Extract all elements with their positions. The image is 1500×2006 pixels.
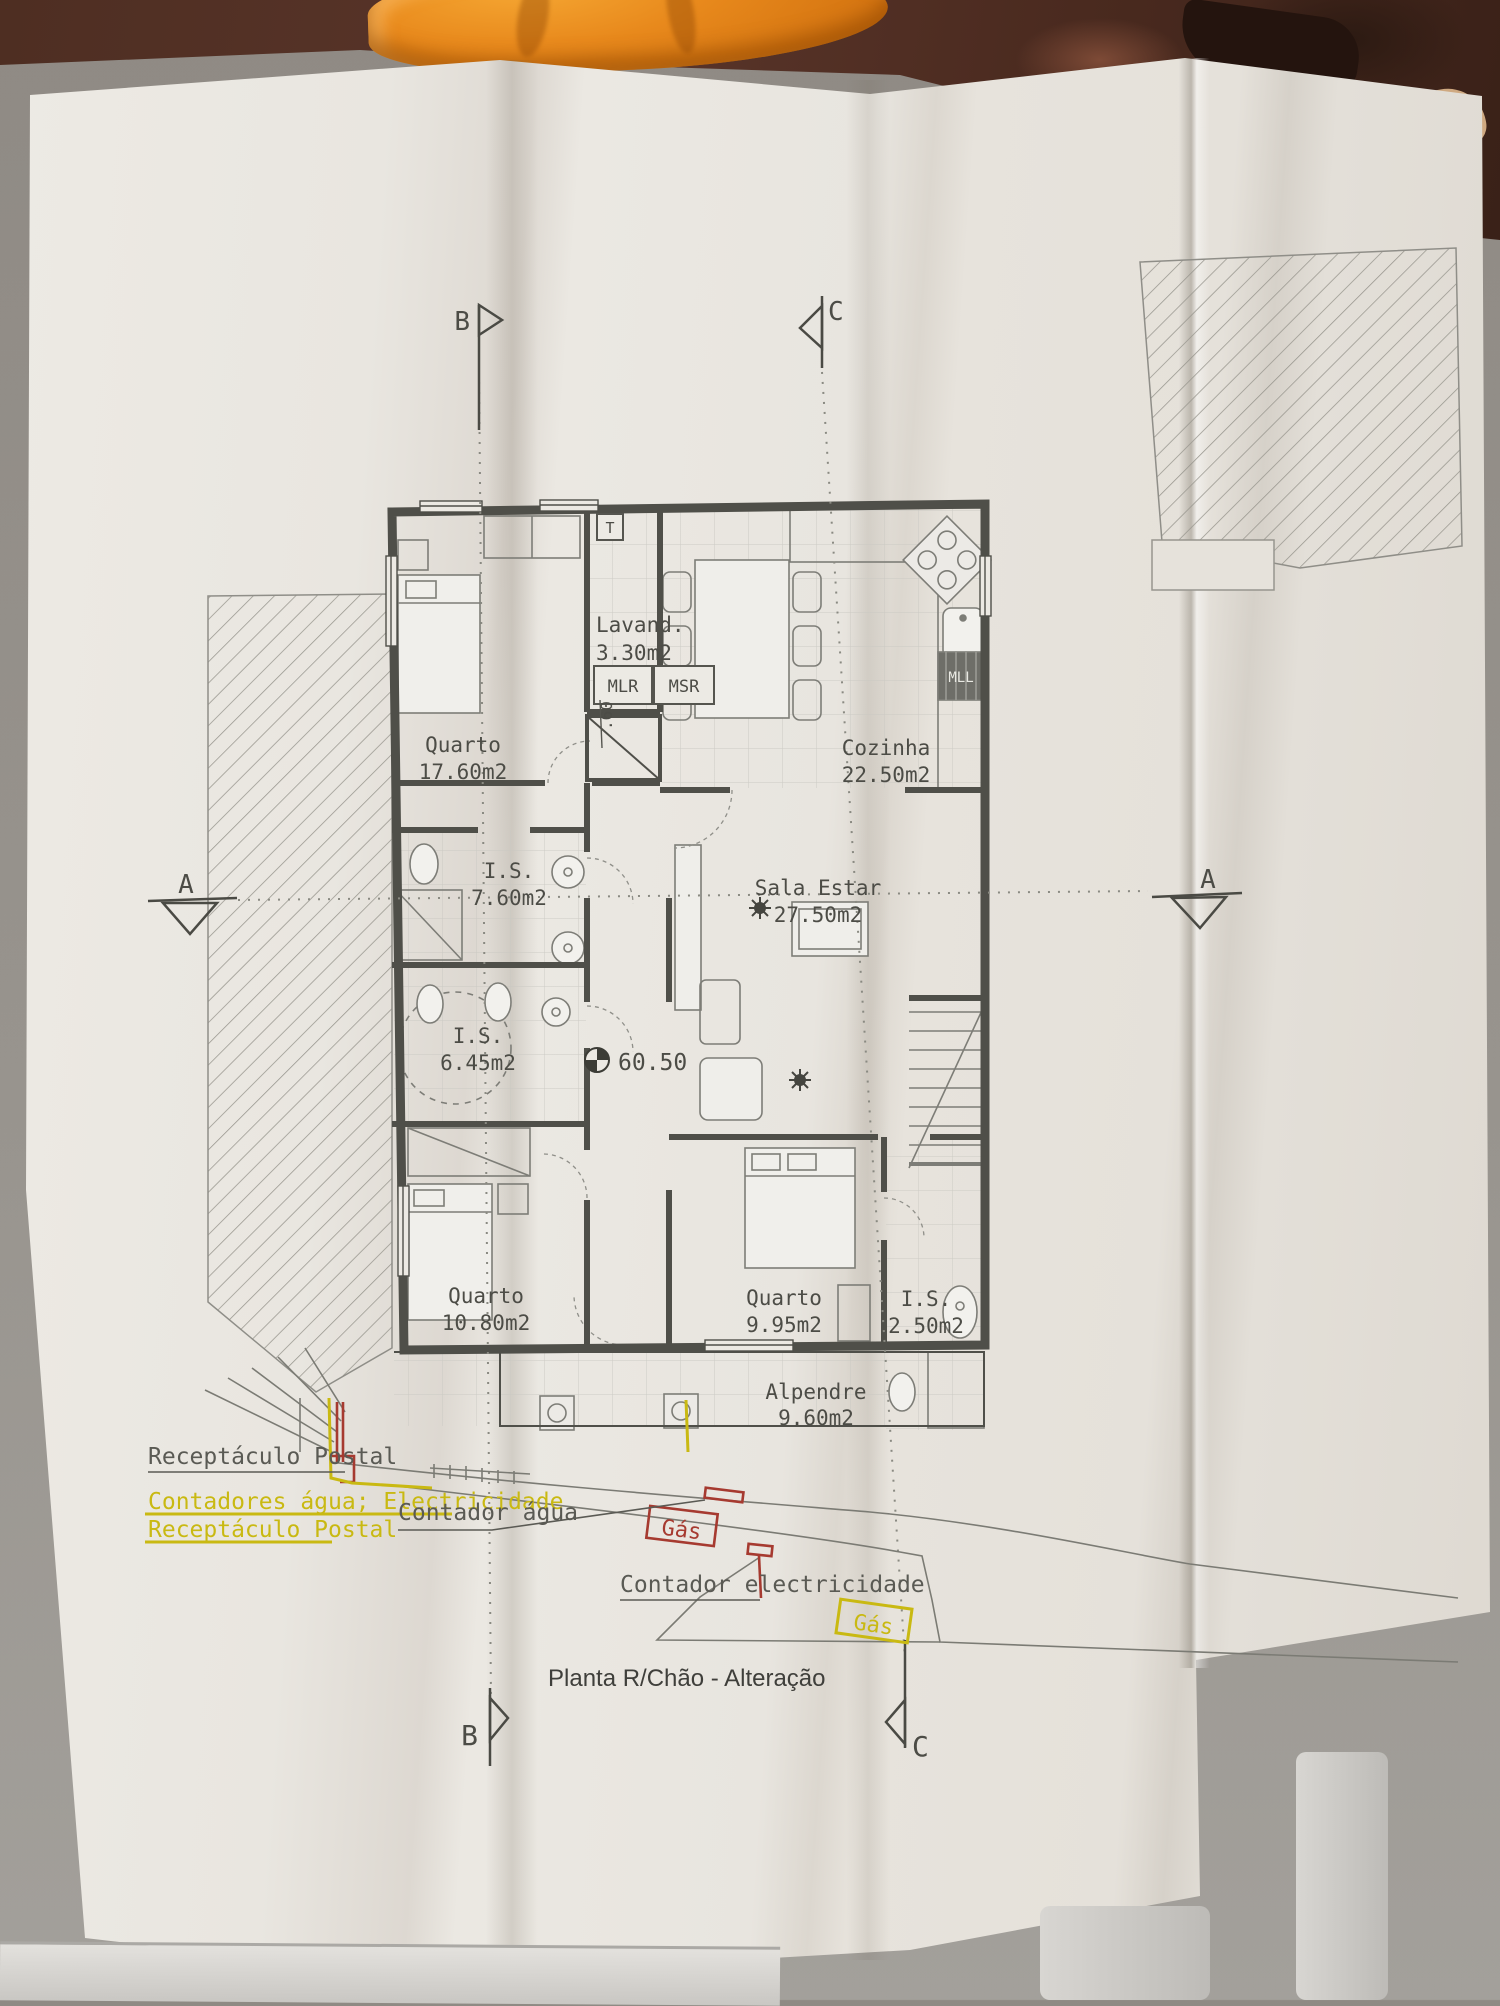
svg-text:6.45m2: 6.45m2 xyxy=(440,1051,516,1075)
room-label-sala: Sala Estar xyxy=(755,876,881,900)
svg-text:10.80m2: 10.80m2 xyxy=(442,1311,531,1335)
gas-box-red: Gás xyxy=(646,1506,717,1546)
level-value: 60.50 xyxy=(618,1050,687,1076)
section-marker-b-bottom: B xyxy=(461,1688,508,1766)
section-marker-c-bottom: C xyxy=(886,1640,929,1763)
section-marker-c-top: C xyxy=(800,296,844,368)
svg-text:3.30m2: 3.30m2 xyxy=(596,641,672,665)
room-label-is1: I.S. xyxy=(484,859,535,883)
hatch-area-top-right xyxy=(1140,248,1462,590)
toilet-icon xyxy=(889,1373,915,1411)
receptaculo-postal-yellow: Receptáculo Postal xyxy=(148,1517,397,1543)
plant-icon xyxy=(749,897,771,919)
svg-text:C: C xyxy=(828,297,844,327)
svg-text:Gás: Gás xyxy=(660,1516,703,1546)
svg-text:A: A xyxy=(178,870,194,900)
svg-text:9.95m2: 9.95m2 xyxy=(746,1313,822,1337)
room-label-is3: I.S. xyxy=(901,1287,952,1311)
room-label-cozinha: Cozinha xyxy=(842,736,931,760)
room-label-is2: I.S. xyxy=(453,1024,504,1048)
svg-text:27.50m2: 27.50m2 xyxy=(774,903,863,927)
mll-label: MLL xyxy=(948,670,973,686)
svg-text:B: B xyxy=(461,1719,478,1752)
contador-electricidade: Contador electricidade xyxy=(620,1572,925,1598)
room-label-quarto3: Quarto xyxy=(448,1284,524,1308)
level-mark: 60.50 xyxy=(585,1048,687,1076)
receptaculo-postal-gray: Receptáculo Postal xyxy=(148,1444,397,1470)
svg-text:22.50m2: 22.50m2 xyxy=(842,763,931,787)
bidet-icon xyxy=(485,983,511,1021)
svg-text:7.60m2: 7.60m2 xyxy=(471,886,547,910)
toilet-icon xyxy=(417,985,443,1023)
gas-box-yellow: Gás xyxy=(836,1599,912,1643)
svg-text:B: B xyxy=(454,307,470,337)
svg-text:C: C xyxy=(912,1730,929,1763)
washbasin-icon xyxy=(552,932,584,964)
toilet-icon xyxy=(410,844,438,884)
floor-plan-drawing: B C A A B C Quarto 17.60m2 xyxy=(0,0,1500,2000)
svg-text:17.60m2: 17.60m2 xyxy=(419,760,508,784)
svg-text:A: A xyxy=(1200,865,1216,895)
room-label-alpendre: Alpendre xyxy=(765,1380,866,1404)
section-marker-b-top: B xyxy=(454,305,502,430)
hatch-area-left xyxy=(208,594,392,1392)
room-label-lavand: Lavand. xyxy=(596,613,685,637)
room-label-quarto4: Quarto xyxy=(746,1286,822,1310)
drawing-title: Planta R/Chão - Alteração xyxy=(548,1665,826,1692)
t-box-label: T xyxy=(605,519,614,537)
washbasin-icon xyxy=(552,856,584,888)
msr-label: MSR xyxy=(669,677,700,697)
washbasin-icon xyxy=(542,998,570,1026)
annotation-texts: Receptáculo Postal Contadores água; Elec… xyxy=(148,1444,925,1600)
svg-text:9.60m2: 9.60m2 xyxy=(778,1406,854,1430)
section-marker-a-right: A xyxy=(1152,865,1242,928)
mlr-label: MLR xyxy=(608,677,639,697)
svg-text:2.50m2: 2.50m2 xyxy=(888,1314,964,1338)
plant-icon xyxy=(789,1069,811,1091)
room-label-quarto1: Quarto xyxy=(425,733,501,757)
